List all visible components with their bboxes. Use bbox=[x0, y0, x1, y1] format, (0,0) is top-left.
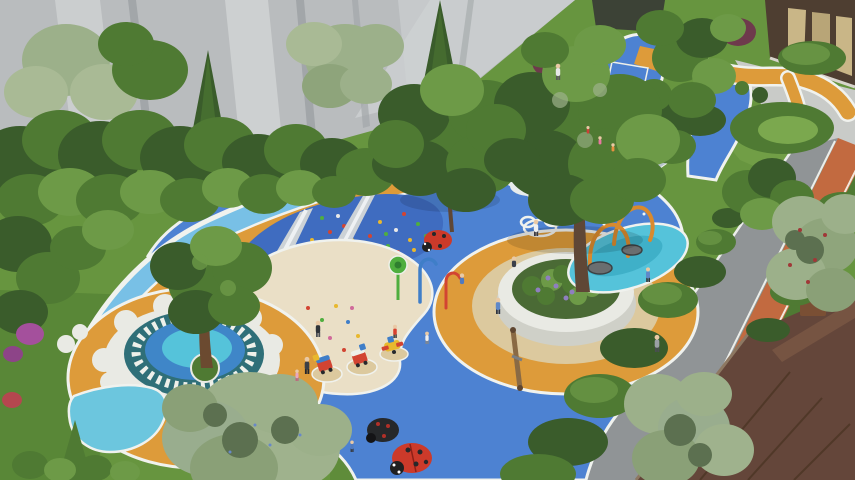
splash-basin bbox=[588, 262, 612, 274]
playground-aerial-scene bbox=[0, 0, 855, 480]
rendering-stage: Aerial 3D rendering of a colorful commun… bbox=[0, 0, 855, 480]
person-seated bbox=[512, 256, 516, 267]
magenta-bush bbox=[16, 323, 44, 345]
playground-rendering-page: { "scene": { "description": "Aerial 3D r… bbox=[0, 0, 855, 480]
red-flower-bush bbox=[2, 392, 22, 408]
child bbox=[586, 126, 589, 134]
person-seated bbox=[460, 273, 464, 284]
child bbox=[611, 143, 614, 151]
child bbox=[598, 136, 601, 144]
